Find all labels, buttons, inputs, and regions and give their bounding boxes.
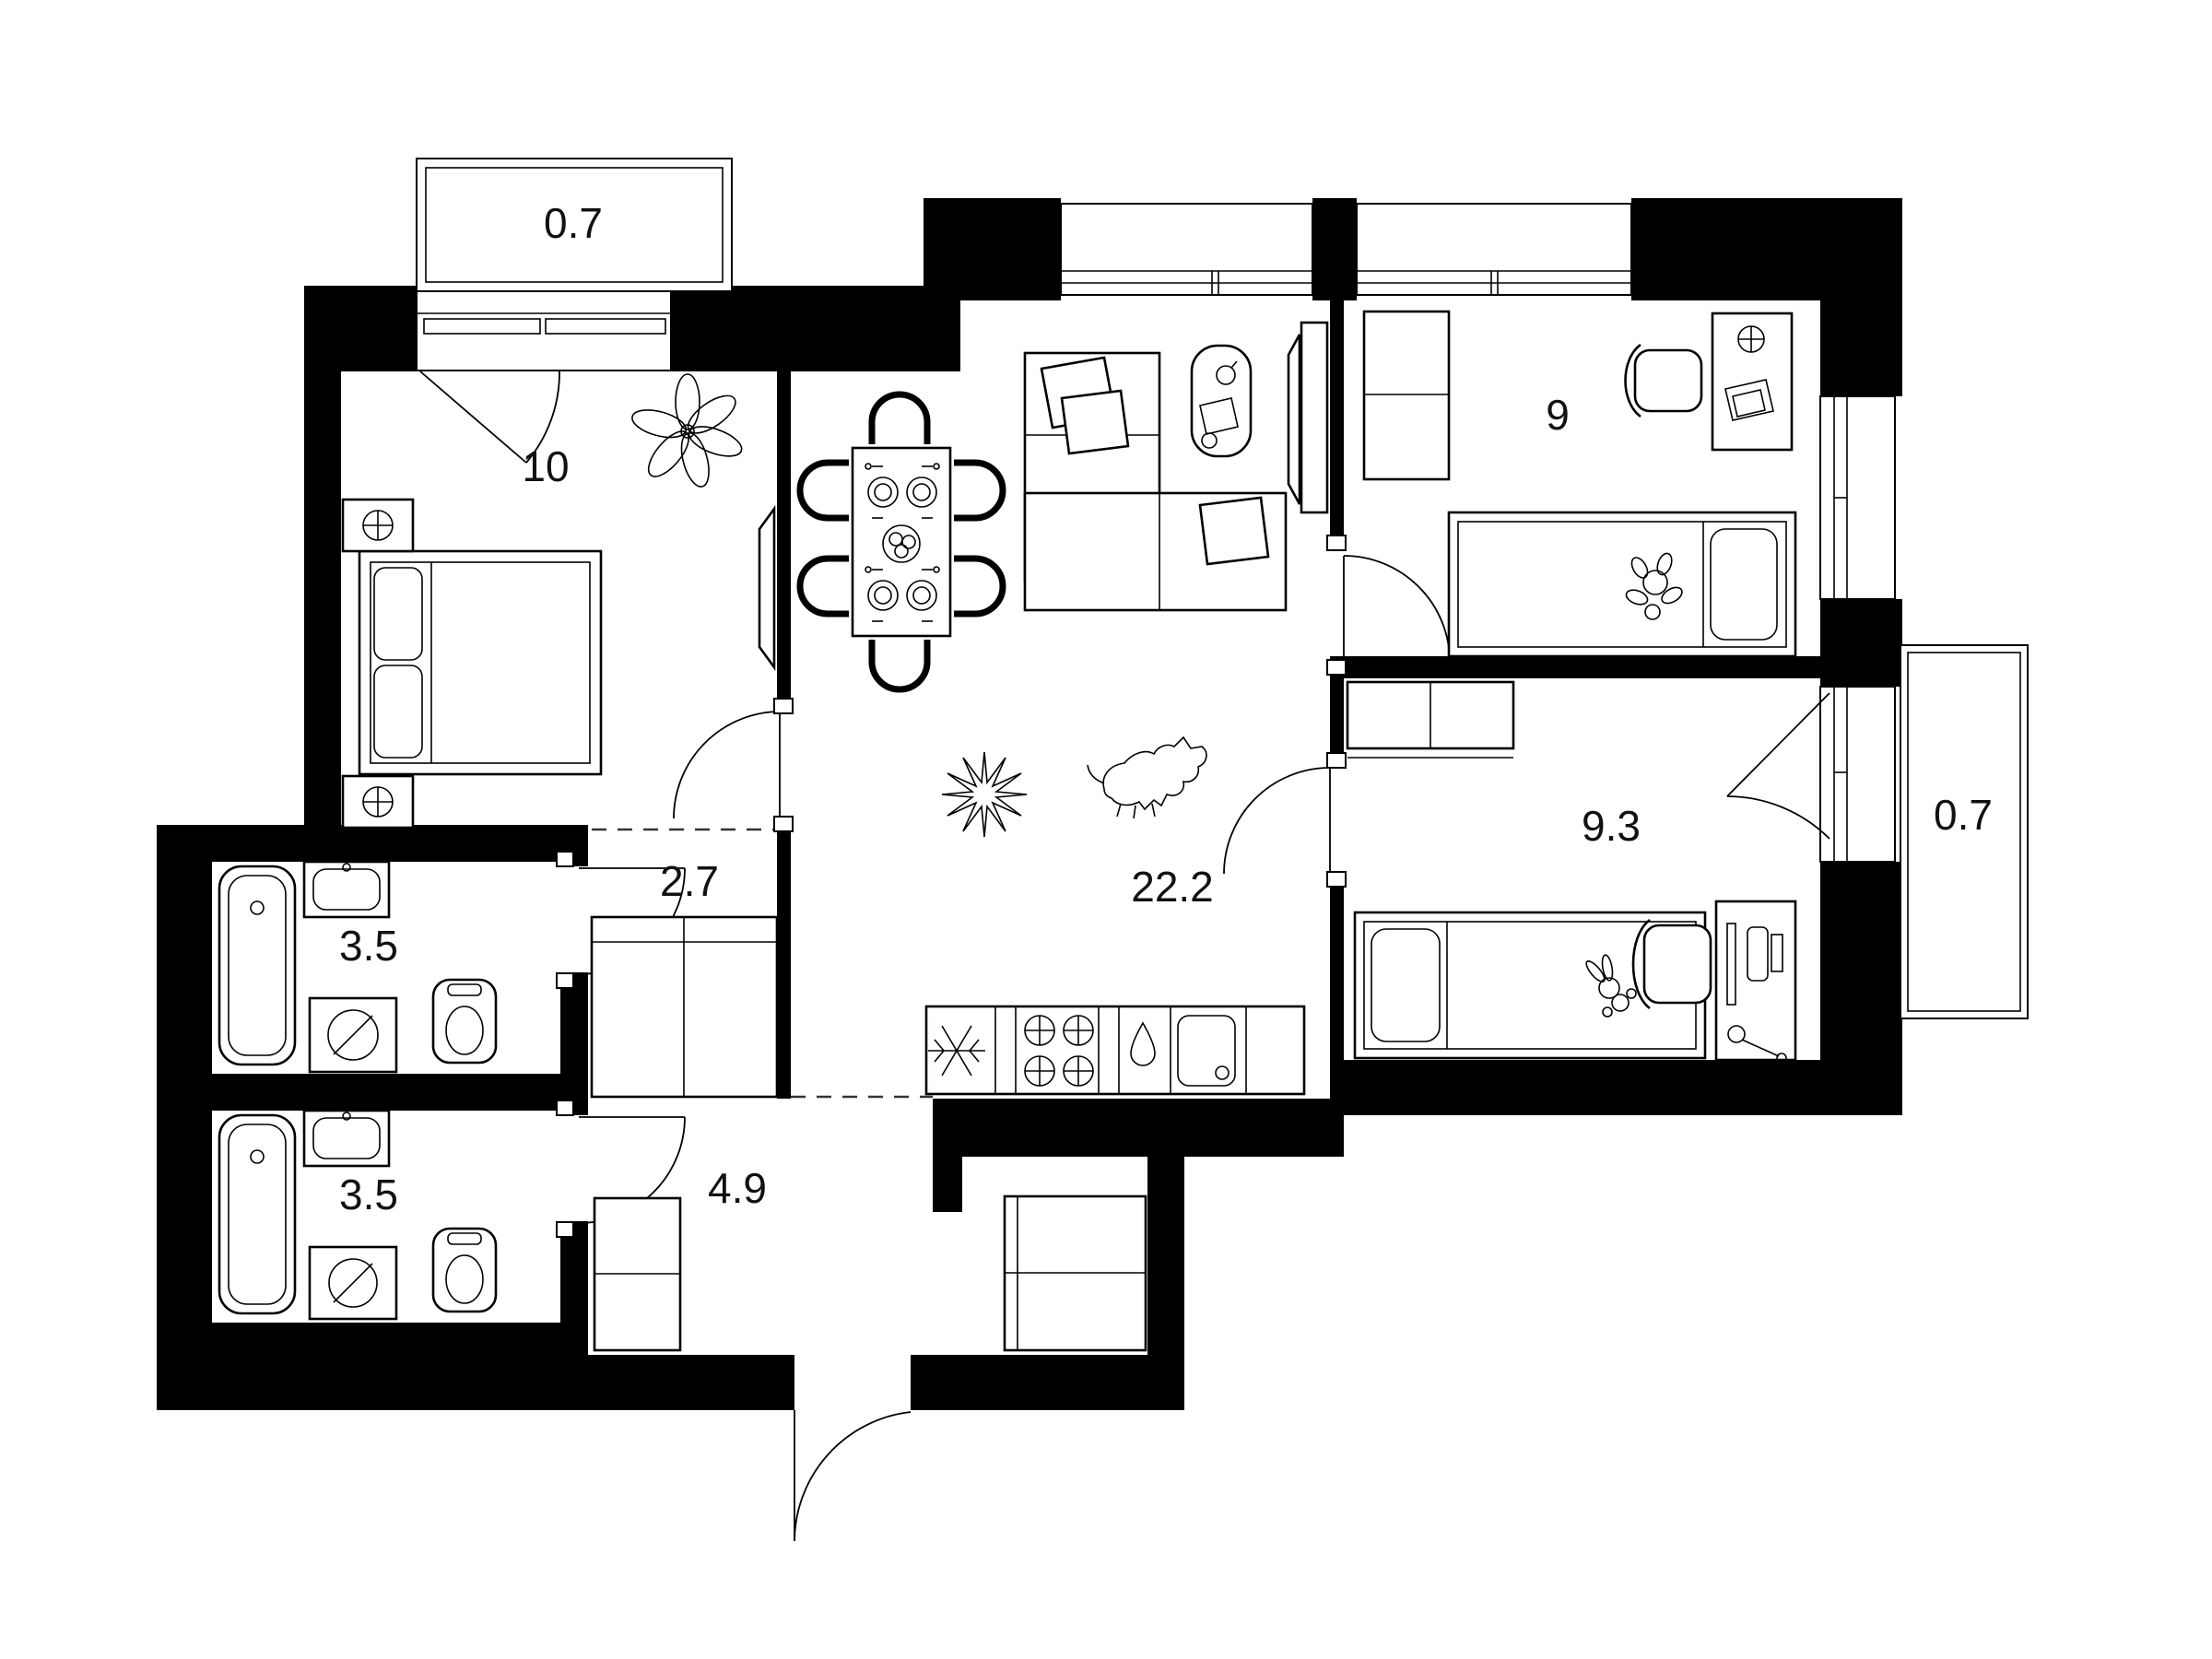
balcony-top-label: 0.7: [544, 199, 603, 247]
sofa-pillow: [1200, 498, 1268, 564]
hallway-furniture: [594, 1196, 1146, 1350]
balcony-top-left: 0.7: [417, 159, 732, 291]
hall-cabinet: [1005, 1196, 1146, 1350]
room9-door-icon: [1344, 556, 1450, 662]
plant-star-icon: [942, 752, 1027, 837]
washing-machine-icon: [310, 998, 396, 1072]
room93-balcony-door-window-icon: [1820, 687, 1895, 862]
room93-door-icon: [1224, 768, 1330, 874]
nightstand: [343, 500, 413, 551]
kitchen-row: [926, 1006, 1304, 1094]
bedroom-label: 10: [522, 442, 569, 490]
bedroom-window-icon: [417, 291, 671, 371]
hallway-label: 4.9: [708, 1164, 767, 1212]
balcony-right-label: 0.7: [1934, 791, 1993, 839]
room9-label: 9: [1546, 391, 1570, 439]
plant-icon: [629, 374, 746, 489]
tv-icon: [759, 509, 774, 667]
balcony-right: 0.7: [1900, 645, 2028, 1018]
desk-chair: [1626, 345, 1702, 417]
floor-plan-page: 0.7 0.7: [0, 0, 2212, 1659]
desk: [1712, 313, 1792, 450]
single-bed: [1449, 512, 1795, 656]
sofa-pillow: [1062, 391, 1128, 453]
room9-side-window-icon: [1820, 396, 1895, 599]
corridor-wardrobe: [592, 917, 777, 1097]
bathtub-icon: [219, 1115, 295, 1313]
room93-label: 9.3: [1582, 802, 1641, 850]
room9-furniture: [1364, 312, 1795, 656]
nightstand: [343, 776, 413, 828]
room9-top-window-icon: [1357, 204, 1631, 295]
tv-icon: [1288, 335, 1300, 504]
dining-set: [800, 394, 1003, 689]
desk-chair: [1633, 920, 1711, 1008]
corridor-label: 2.7: [660, 857, 719, 905]
hall-cabinet: [594, 1198, 680, 1350]
room93-furniture: [1347, 682, 1795, 1063]
toilet-icon: [433, 980, 496, 1063]
dog-icon: [1088, 737, 1206, 818]
living-window-icon: [1061, 204, 1312, 295]
bath-sink-icon: [304, 1111, 389, 1166]
wall-lamp-icon: [363, 511, 393, 540]
floor-plan-canvas: 0.7 0.7: [0, 0, 2212, 1659]
tv-stand-living: [1288, 323, 1327, 512]
entry-door-icon: [794, 1410, 911, 1541]
living-label: 22.2: [1131, 863, 1214, 911]
double-bed: [359, 551, 601, 774]
wall-lamp-icon: [1738, 326, 1764, 352]
room93-balcony-door-icon: [1727, 693, 1830, 839]
wardrobe: [1347, 682, 1513, 758]
bath-sink-icon: [304, 862, 389, 917]
wall-lamp-icon: [363, 787, 393, 817]
bathroom-bottom-label: 3.5: [339, 1171, 398, 1218]
washing-machine-icon: [310, 1247, 396, 1319]
bedroom-door-icon: [674, 712, 780, 818]
toilet-icon: [433, 1229, 496, 1312]
wardrobe: [1364, 312, 1449, 479]
bathtub-icon: [219, 866, 295, 1065]
bathroom-top-label: 3.5: [339, 922, 398, 970]
desk: [1716, 901, 1795, 1063]
coffee-table: [1192, 346, 1251, 456]
